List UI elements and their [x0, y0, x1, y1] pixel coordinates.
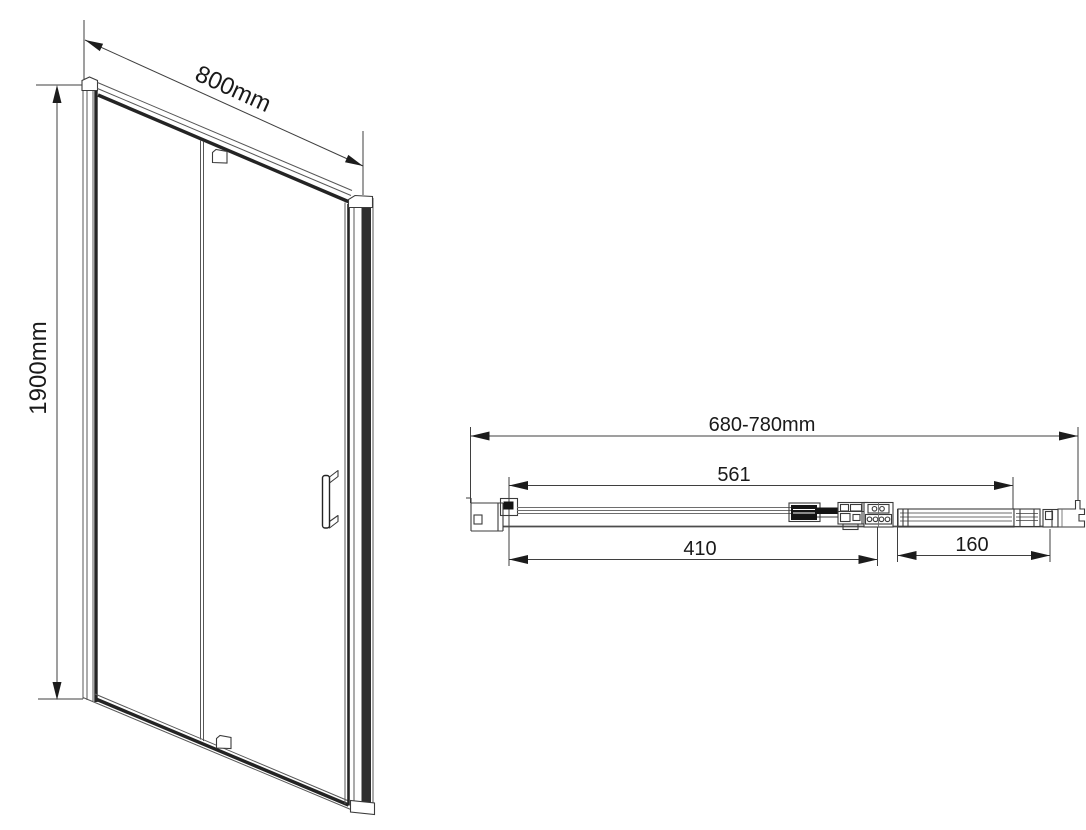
- left-stile: [82, 77, 98, 702]
- roller-mechanism: [789, 503, 838, 522]
- right-stile-top-cap: [349, 196, 373, 208]
- door-panel-dimension: 410: [509, 527, 878, 566]
- height-dimension: 1900mm: [25, 85, 84, 700]
- top-rail: [98, 83, 353, 203]
- plan-view: 680-780mm 561 410 160: [466, 414, 1085, 566]
- end-bracket: [1043, 510, 1058, 528]
- adjustable-rail: [898, 509, 1014, 527]
- dimension-arrow-right: [994, 481, 1013, 490]
- door-handle: [323, 471, 339, 529]
- dimension-arrow-left: [898, 551, 917, 560]
- dimension-arrow-left: [471, 432, 490, 441]
- dimension-arrow-left: [85, 40, 103, 51]
- left-wall-profile: [466, 498, 503, 531]
- width-dimension-label: 800mm: [191, 60, 275, 118]
- right-stile: [345, 196, 375, 815]
- dimension-arrow-right: [1059, 432, 1078, 441]
- handle-bottom-mount: [330, 516, 339, 529]
- handle-top-mount: [330, 471, 339, 484]
- pivot-clip-bottom: [217, 736, 232, 749]
- adjuster-bracket: [838, 503, 868, 530]
- height-dimension-label: 1900mm: [25, 321, 52, 414]
- door-panel-label: 410: [683, 538, 716, 560]
- technical-drawing-page: 1900mm 800mm: [0, 0, 1086, 830]
- dimension-arrow-right: [1031, 551, 1050, 560]
- right-stile-bottom-cap: [351, 801, 375, 815]
- mounting-plate: [864, 503, 893, 528]
- clamp-block: [1014, 509, 1040, 527]
- bottom-rail: [83, 694, 352, 810]
- fixed-section-label: 160: [955, 534, 988, 556]
- door-frame: [82, 77, 375, 815]
- right-stile-dark-face: [362, 199, 372, 811]
- dimension-arrow-right: [859, 555, 878, 564]
- right-wall-profile: [1058, 501, 1085, 528]
- dimension-arrow-down: [53, 682, 62, 700]
- overall-width-label: 680-780mm: [709, 414, 816, 436]
- top-rail-profile: [517, 508, 791, 514]
- rail-assembly: [466, 498, 1085, 531]
- left-stile-top-cap: [82, 77, 98, 91]
- handle-bar: [323, 476, 330, 529]
- dimension-arrow-right: [345, 155, 363, 166]
- shower-door-drawing: 1900mm 800mm: [0, 0, 1086, 830]
- roller-span-label: 561: [717, 464, 750, 486]
- dimension-arrow-left: [509, 481, 528, 490]
- pivot-clip-top: [213, 150, 228, 164]
- overall-width-dimension: 680-780mm: [471, 414, 1079, 503]
- dimension-arrow-up: [53, 85, 62, 103]
- center-divider: [201, 140, 204, 741]
- roller-span-dimension: 561: [509, 464, 1013, 566]
- dimension-arrow-left: [509, 555, 528, 564]
- front-view: 1900mm 800mm: [25, 20, 375, 815]
